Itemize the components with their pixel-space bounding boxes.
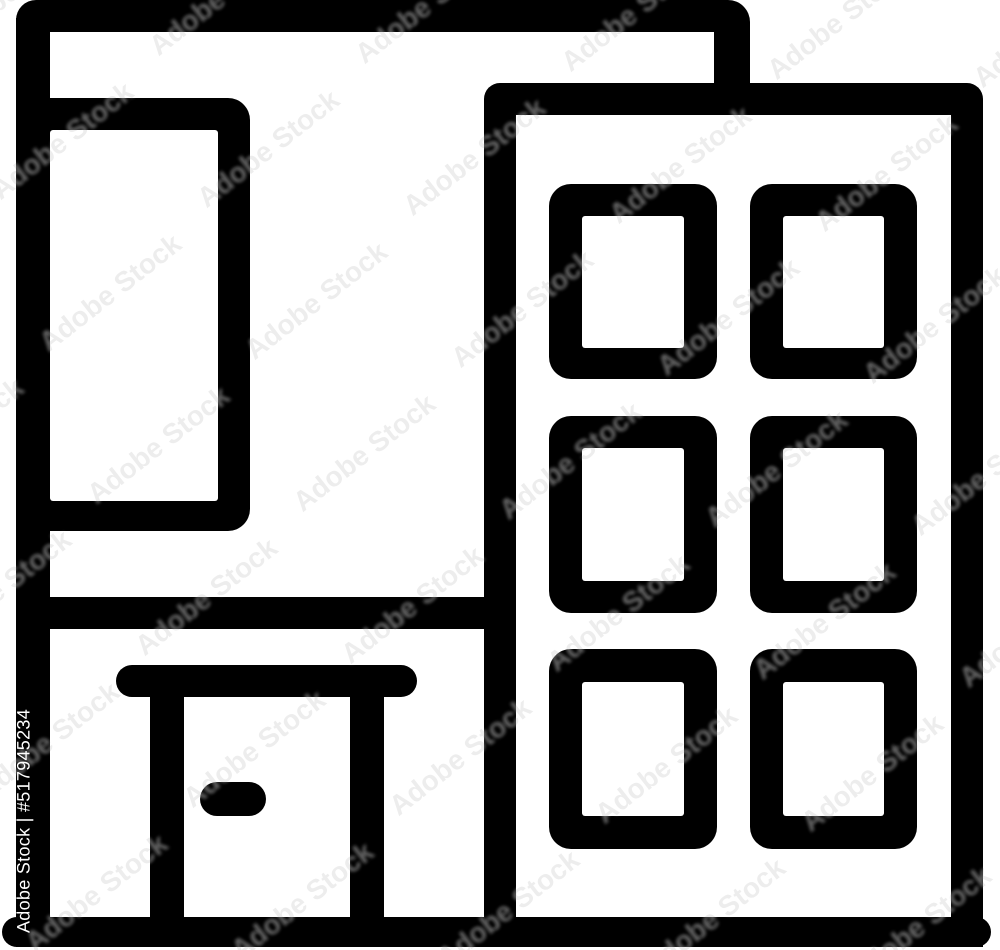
svg-text:Adobe Stock | #517945234: Adobe Stock | #517945234: [14, 709, 34, 933]
